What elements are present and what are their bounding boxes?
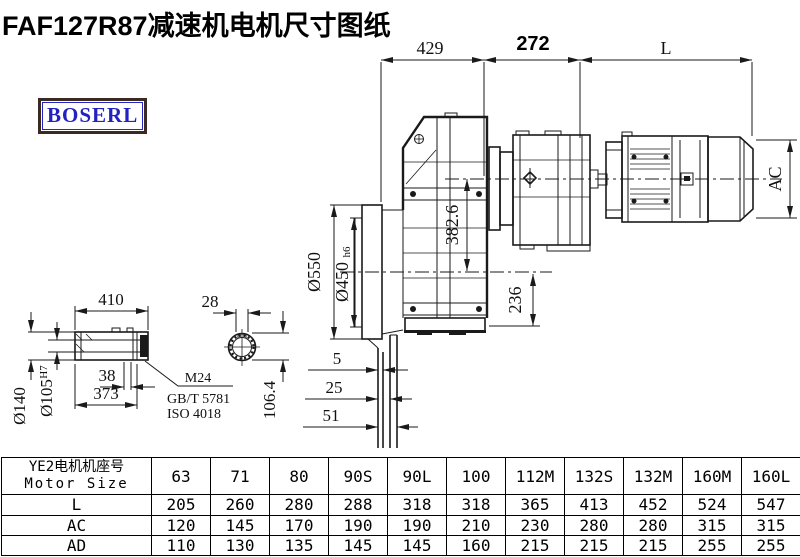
dim-38-label: 38 [99, 366, 116, 385]
dim-106-label: 106.4 [260, 380, 279, 419]
dim-5-label: 5 [333, 349, 342, 368]
dim-L-label: L [661, 38, 672, 58]
table-cell: 145 [388, 535, 447, 555]
table-cell: 210 [447, 515, 506, 535]
motor-size-table: YE2电机机座号Motor Size63718090S90L100112M132… [1, 457, 800, 556]
table-cell: 280 [565, 515, 624, 535]
shaft-detail: 410 Ø140 Ø105 H7 38 373 [10, 290, 233, 425]
technical-drawing: 429 272 L [0, 0, 800, 460]
column-header: 100 [447, 458, 506, 495]
table-cell: 260 [211, 495, 270, 515]
table-cell: 160 [447, 535, 506, 555]
table-header-row: YE2电机机座号Motor Size63718090S90L100112M132… [2, 458, 800, 495]
motor-outline [606, 132, 753, 222]
page-title: FAF127R87减速机电机尺寸图纸 [2, 4, 391, 43]
ac-dimension: AC [756, 140, 797, 218]
dim-h6-label: h6 [341, 246, 353, 258]
table-row: AD110130135145145160215215215255255 [2, 535, 800, 555]
table-cell: 120 [152, 515, 211, 535]
table-cell: 170 [270, 515, 329, 535]
column-header: 132M [624, 458, 683, 495]
dim-28-label: 28 [202, 292, 219, 311]
table-cell: 315 [683, 515, 742, 535]
table-cell: 215 [506, 535, 565, 555]
table-cell: 365 [506, 495, 565, 515]
boserl-logo-text: BOSERL [42, 102, 143, 130]
table-cell: 130 [211, 535, 270, 555]
table-cell: 135 [270, 535, 329, 555]
table-cell: 145 [211, 515, 270, 535]
boserl-logo: BOSERL [38, 98, 147, 134]
dim-373-label: 373 [93, 384, 119, 403]
flange-thickness-dimensions: 5 25 51 [303, 349, 418, 427]
table-row: AC120145170190190210230280280315315 [2, 515, 800, 535]
column-header: 132S [565, 458, 624, 495]
row-label: AD [2, 535, 152, 555]
column-header: 80 [270, 458, 329, 495]
motor-size-header-cell: YE2电机机座号Motor Size [2, 458, 152, 495]
centerlines [340, 179, 782, 272]
column-header: 71 [211, 458, 270, 495]
table-cell: 288 [329, 495, 388, 515]
output-flange [355, 205, 403, 448]
dim-272-label: 272 [516, 33, 549, 55]
table-cell: 215 [565, 535, 624, 555]
dim-25-label: 25 [326, 378, 343, 397]
dim-410-label: 410 [98, 290, 124, 309]
table-cell: 230 [506, 515, 565, 535]
dim-dia140-label: Ø140 [10, 387, 29, 425]
dim-dia450-label: Ø450 [332, 262, 352, 302]
table-cell: 255 [683, 535, 742, 555]
table-cell: 315 [742, 515, 800, 535]
table-cell: 280 [270, 495, 329, 515]
column-header: 160L [742, 458, 800, 495]
dim-dia550-label: Ø550 [304, 252, 324, 292]
dim-ac-label: AC [765, 166, 785, 191]
dim-51-label: 51 [323, 406, 340, 425]
table-cell: 318 [447, 495, 506, 515]
table-cell: 110 [152, 535, 211, 555]
table-cell: 413 [565, 495, 624, 515]
column-header: 90S [329, 458, 388, 495]
table-cell: 145 [329, 535, 388, 555]
column-header: 63 [152, 458, 211, 495]
table-cell: 190 [329, 515, 388, 535]
table-row: L205260280288318318365413452524547 [2, 495, 800, 515]
dim-429-label: 429 [417, 38, 444, 58]
table-cell: 215 [624, 535, 683, 555]
row-label: AC [2, 515, 152, 535]
callout-gbt5781: GB/T 5781 [167, 392, 230, 407]
dim-h7-label: H7 [38, 365, 50, 379]
column-header: 160M [683, 458, 742, 495]
drawing-page: 429 272 L [0, 0, 800, 557]
table-cell: 280 [624, 515, 683, 535]
callout-iso4018: ISO 4018 [167, 407, 221, 422]
column-header: 90L [388, 458, 447, 495]
dim-382-label: 382.6 [442, 205, 462, 246]
column-header: 112M [506, 458, 565, 495]
table-cell: 547 [742, 495, 800, 515]
gear-stage [489, 131, 607, 251]
table-body: YE2电机机座号Motor Size63718090S90L100112M132… [2, 458, 800, 556]
dim-dia105-label: Ø105 [37, 379, 56, 417]
table-cell: 255 [742, 535, 800, 555]
row-label: L [2, 495, 152, 515]
table-cell: 205 [152, 495, 211, 515]
table-cell: 190 [388, 515, 447, 535]
table-cell: 452 [624, 495, 683, 515]
callout-m24: M24 [185, 371, 211, 386]
table-cell: 524 [683, 495, 742, 515]
table-cell: 318 [388, 495, 447, 515]
dim-236-label: 236 [505, 287, 525, 314]
